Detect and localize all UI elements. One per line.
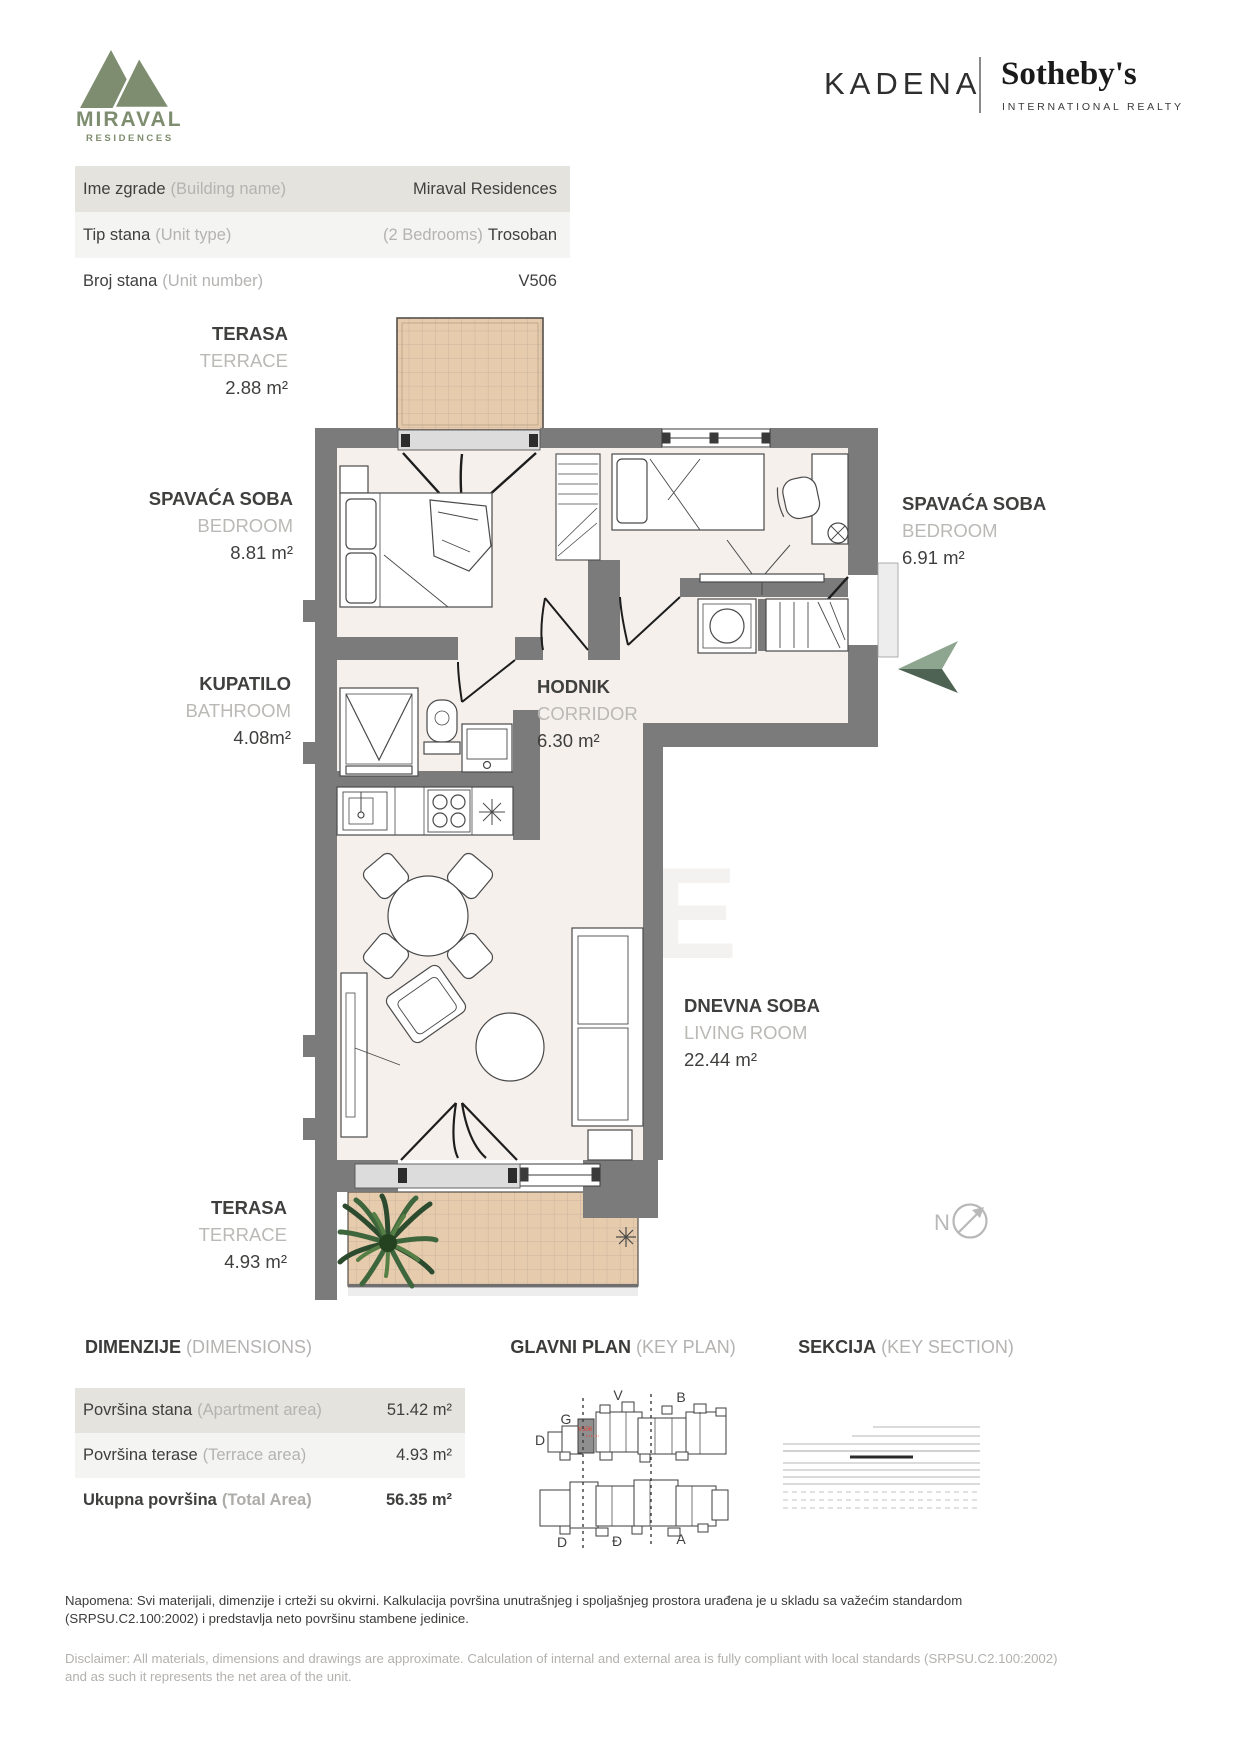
title-sr: DIMENZIJE xyxy=(85,1337,181,1357)
table-row: Površina terase(Terrace area) 4.93 m² xyxy=(75,1433,465,1478)
room-name-en: BEDROOM xyxy=(149,512,293,539)
keyplan-letter: V xyxy=(613,1387,623,1403)
room-name-sr: SPAVAĆA SOBA xyxy=(902,490,1046,517)
dimensions-table: Površina stana(Apartment area) 51.42 m² … xyxy=(75,1388,465,1523)
room-name-en: TERRACE xyxy=(199,1221,287,1248)
row-label: Površina terase xyxy=(83,1446,198,1464)
title-en: (KEY SECTION) xyxy=(881,1337,1014,1357)
entry-landing xyxy=(878,563,898,657)
room-label-bedroom-right: SPAVAĆA SOBA BEDROOM 6.91 m² xyxy=(902,490,1046,571)
room-area: 6.91 m² xyxy=(902,544,1046,571)
room-name-sr: HODNIK xyxy=(537,673,638,700)
keyplan-letter: G xyxy=(561,1411,572,1427)
room-label-corridor: HODNIK CORRIDOR 6.30 m² xyxy=(537,673,638,754)
room-area: 6.30 m² xyxy=(537,727,638,754)
table-row: Ukupna površina(Total Area) 56.35 m² xyxy=(75,1478,465,1523)
row-label: Površina stana xyxy=(83,1401,192,1419)
room-label-bathroom: KUPATILO BATHROOM 4.08m² xyxy=(185,670,291,751)
room-name-sr: DNEVNA SOBA xyxy=(684,992,820,1019)
dimensions-title: DIMENZIJE(DIMENSIONS) xyxy=(85,1337,312,1358)
title-sr: SEKCIJA xyxy=(798,1337,876,1357)
title-sr: GLAVNI PLAN xyxy=(510,1337,631,1357)
room-name-en: LIVING ROOM xyxy=(684,1019,820,1046)
row-value: 56.35 m² xyxy=(386,1491,452,1509)
room-name-en: BEDROOM xyxy=(902,517,1046,544)
keyplan-letter: Đ xyxy=(612,1533,622,1549)
wardrobe-column xyxy=(556,454,600,560)
room-area: 4.08m² xyxy=(185,724,291,751)
room-area: 4.93 m² xyxy=(199,1248,287,1275)
room-label-terrace-top: TERASA TERRACE 2.88 m² xyxy=(200,320,288,401)
room-name-sr: SPAVAĆA SOBA xyxy=(149,485,293,512)
key-plan: V506 D G V B xyxy=(535,1387,728,1550)
row-value: 51.42 m² xyxy=(387,1401,452,1419)
row-label-note: (Terrace area) xyxy=(203,1446,307,1464)
title-en: (DIMENSIONS) xyxy=(186,1337,312,1357)
room-name-sr: TERASA xyxy=(199,1194,287,1221)
row-value: 4.93 m² xyxy=(396,1446,452,1464)
section-title: SEKCIJA(KEY SECTION) xyxy=(798,1337,1014,1358)
room-area: 2.88 m² xyxy=(200,374,288,401)
keyplan-unit-label: V506 xyxy=(578,1427,593,1433)
disclaimer-english: Disclaimer: All materials, dimensions an… xyxy=(65,1650,1065,1686)
keyplan-title: GLAVNI PLAN(KEY PLAN) xyxy=(510,1337,735,1358)
row-label: Ukupna površina xyxy=(83,1491,217,1509)
entrance-arrow-icon xyxy=(898,641,958,693)
ac-unit-icon xyxy=(616,1227,636,1247)
utility-closet xyxy=(698,599,848,653)
disclaimer-serbian: Napomena: Svi materijali, dimenzije i cr… xyxy=(65,1592,1065,1628)
room-name-en: CORRIDOR xyxy=(537,700,638,727)
room-label-living-room: DNEVNA SOBA LIVING ROOM 22.44 m² xyxy=(684,992,820,1073)
keyplan-letter: B xyxy=(676,1389,685,1405)
room-area: 22.44 m² xyxy=(684,1046,820,1073)
kitchen-counter xyxy=(337,787,513,835)
title-en: (KEY PLAN) xyxy=(636,1337,736,1357)
keyplan-letter: D xyxy=(557,1534,567,1550)
room-name-sr: TERASA xyxy=(200,320,288,347)
row-label-note: (Apartment area) xyxy=(197,1401,322,1419)
keyplan-letter: D xyxy=(535,1432,545,1448)
key-section xyxy=(783,1427,980,1508)
room-label-terrace-bottom: TERASA TERRACE 4.93 m² xyxy=(199,1194,287,1275)
floorplan-sheet: BA NE MIRAVAL RESIDENCES KADENA Sotheby'… xyxy=(0,0,1241,1754)
row-label-note: (Total Area) xyxy=(222,1491,312,1509)
north-compass-icon: N xyxy=(934,1205,987,1238)
room-name-en: BATHROOM xyxy=(185,697,291,724)
room-name-sr: KUPATILO xyxy=(185,670,291,697)
terrace-top xyxy=(397,318,543,430)
keyplan-letter: A xyxy=(676,1531,686,1547)
room-area: 8.81 m² xyxy=(149,539,293,566)
room-label-bedroom-left: SPAVAĆA SOBA BEDROOM 8.81 m² xyxy=(149,485,293,566)
room-name-en: TERRACE xyxy=(200,347,288,374)
table-row: Površina stana(Apartment area) 51.42 m² xyxy=(75,1388,465,1433)
compass-label: N xyxy=(934,1210,950,1235)
